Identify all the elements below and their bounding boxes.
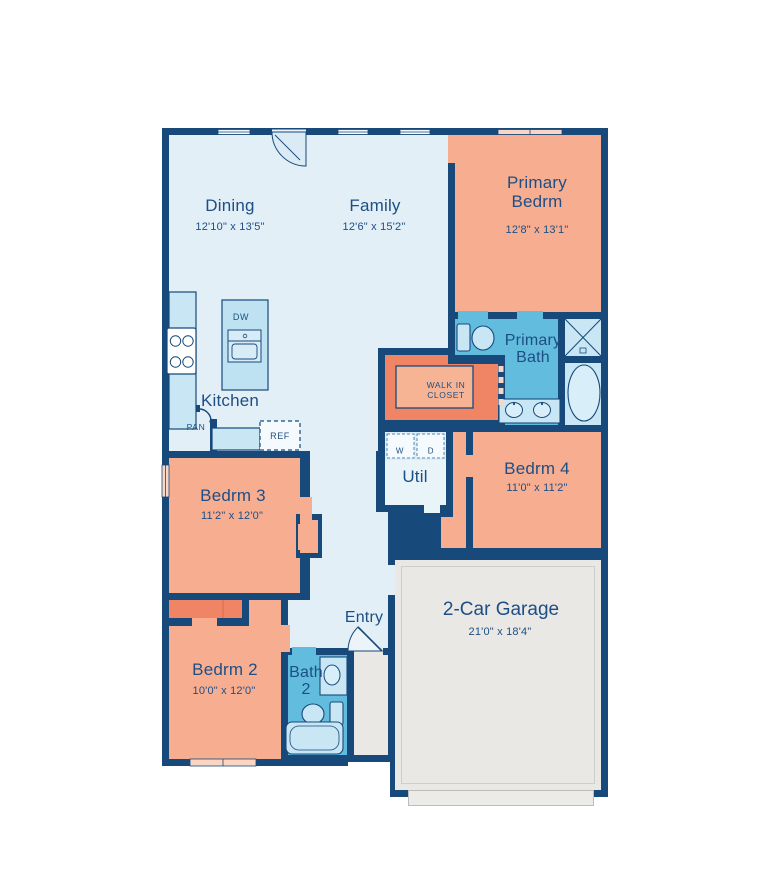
bedroom2-dims: 10'0" x 12'0" [193, 685, 256, 697]
walk-in-closet-label: WALK IN CLOSET [416, 380, 476, 400]
primary-bedroom-dims: 12'8" x 13'1" [506, 224, 569, 236]
refrigerator-label: REF [270, 431, 290, 441]
washer-label: W [396, 447, 404, 456]
floor-plan: Dining 12'10" x 13'5" Family 12'6" x 15'… [0, 0, 772, 881]
family-dims: 12'6" x 15'2" [343, 221, 406, 233]
utility-label: Util [402, 467, 427, 487]
garage-label: 2-Car Garage [443, 599, 559, 621]
garage-door [408, 790, 594, 806]
bedroom3-floor [169, 458, 300, 593]
bedroom3-label: Bedrm 3 [200, 486, 266, 506]
dining-family-floor [169, 135, 448, 348]
primary-bath-label: Primary Bath [494, 332, 572, 366]
bath2-label: Bath 2 [284, 664, 328, 698]
dishwasher-label: DW [233, 312, 249, 322]
footprint-cutout-porch [348, 762, 390, 797]
porch-floor [354, 655, 388, 755]
pantry-label: PAN [187, 422, 206, 432]
family-label: Family [349, 196, 400, 216]
footprint-cutout-left [162, 766, 348, 797]
primary-bedroom-label: Primary Bedrm [491, 173, 583, 211]
bedroom4-dims: 11'0" x 11'2" [506, 482, 567, 494]
dining-dims: 12'10" x 13'5" [195, 221, 264, 233]
bedroom3-dims: 11'2" x 12'0" [201, 510, 263, 522]
dryer-label: D [428, 447, 434, 456]
primary-bedroom-notch [448, 135, 455, 163]
bedroom4-label: Bedrm 4 [504, 459, 570, 479]
bedroom2-closet [169, 600, 242, 618]
dining-label: Dining [205, 196, 254, 216]
kitchen-label: Kitchen [201, 391, 259, 411]
garage-dims: 21'0" x 18'4" [469, 626, 532, 638]
entry-label: Entry [345, 609, 383, 627]
bedroom2-label: Bedrm 2 [192, 660, 258, 680]
